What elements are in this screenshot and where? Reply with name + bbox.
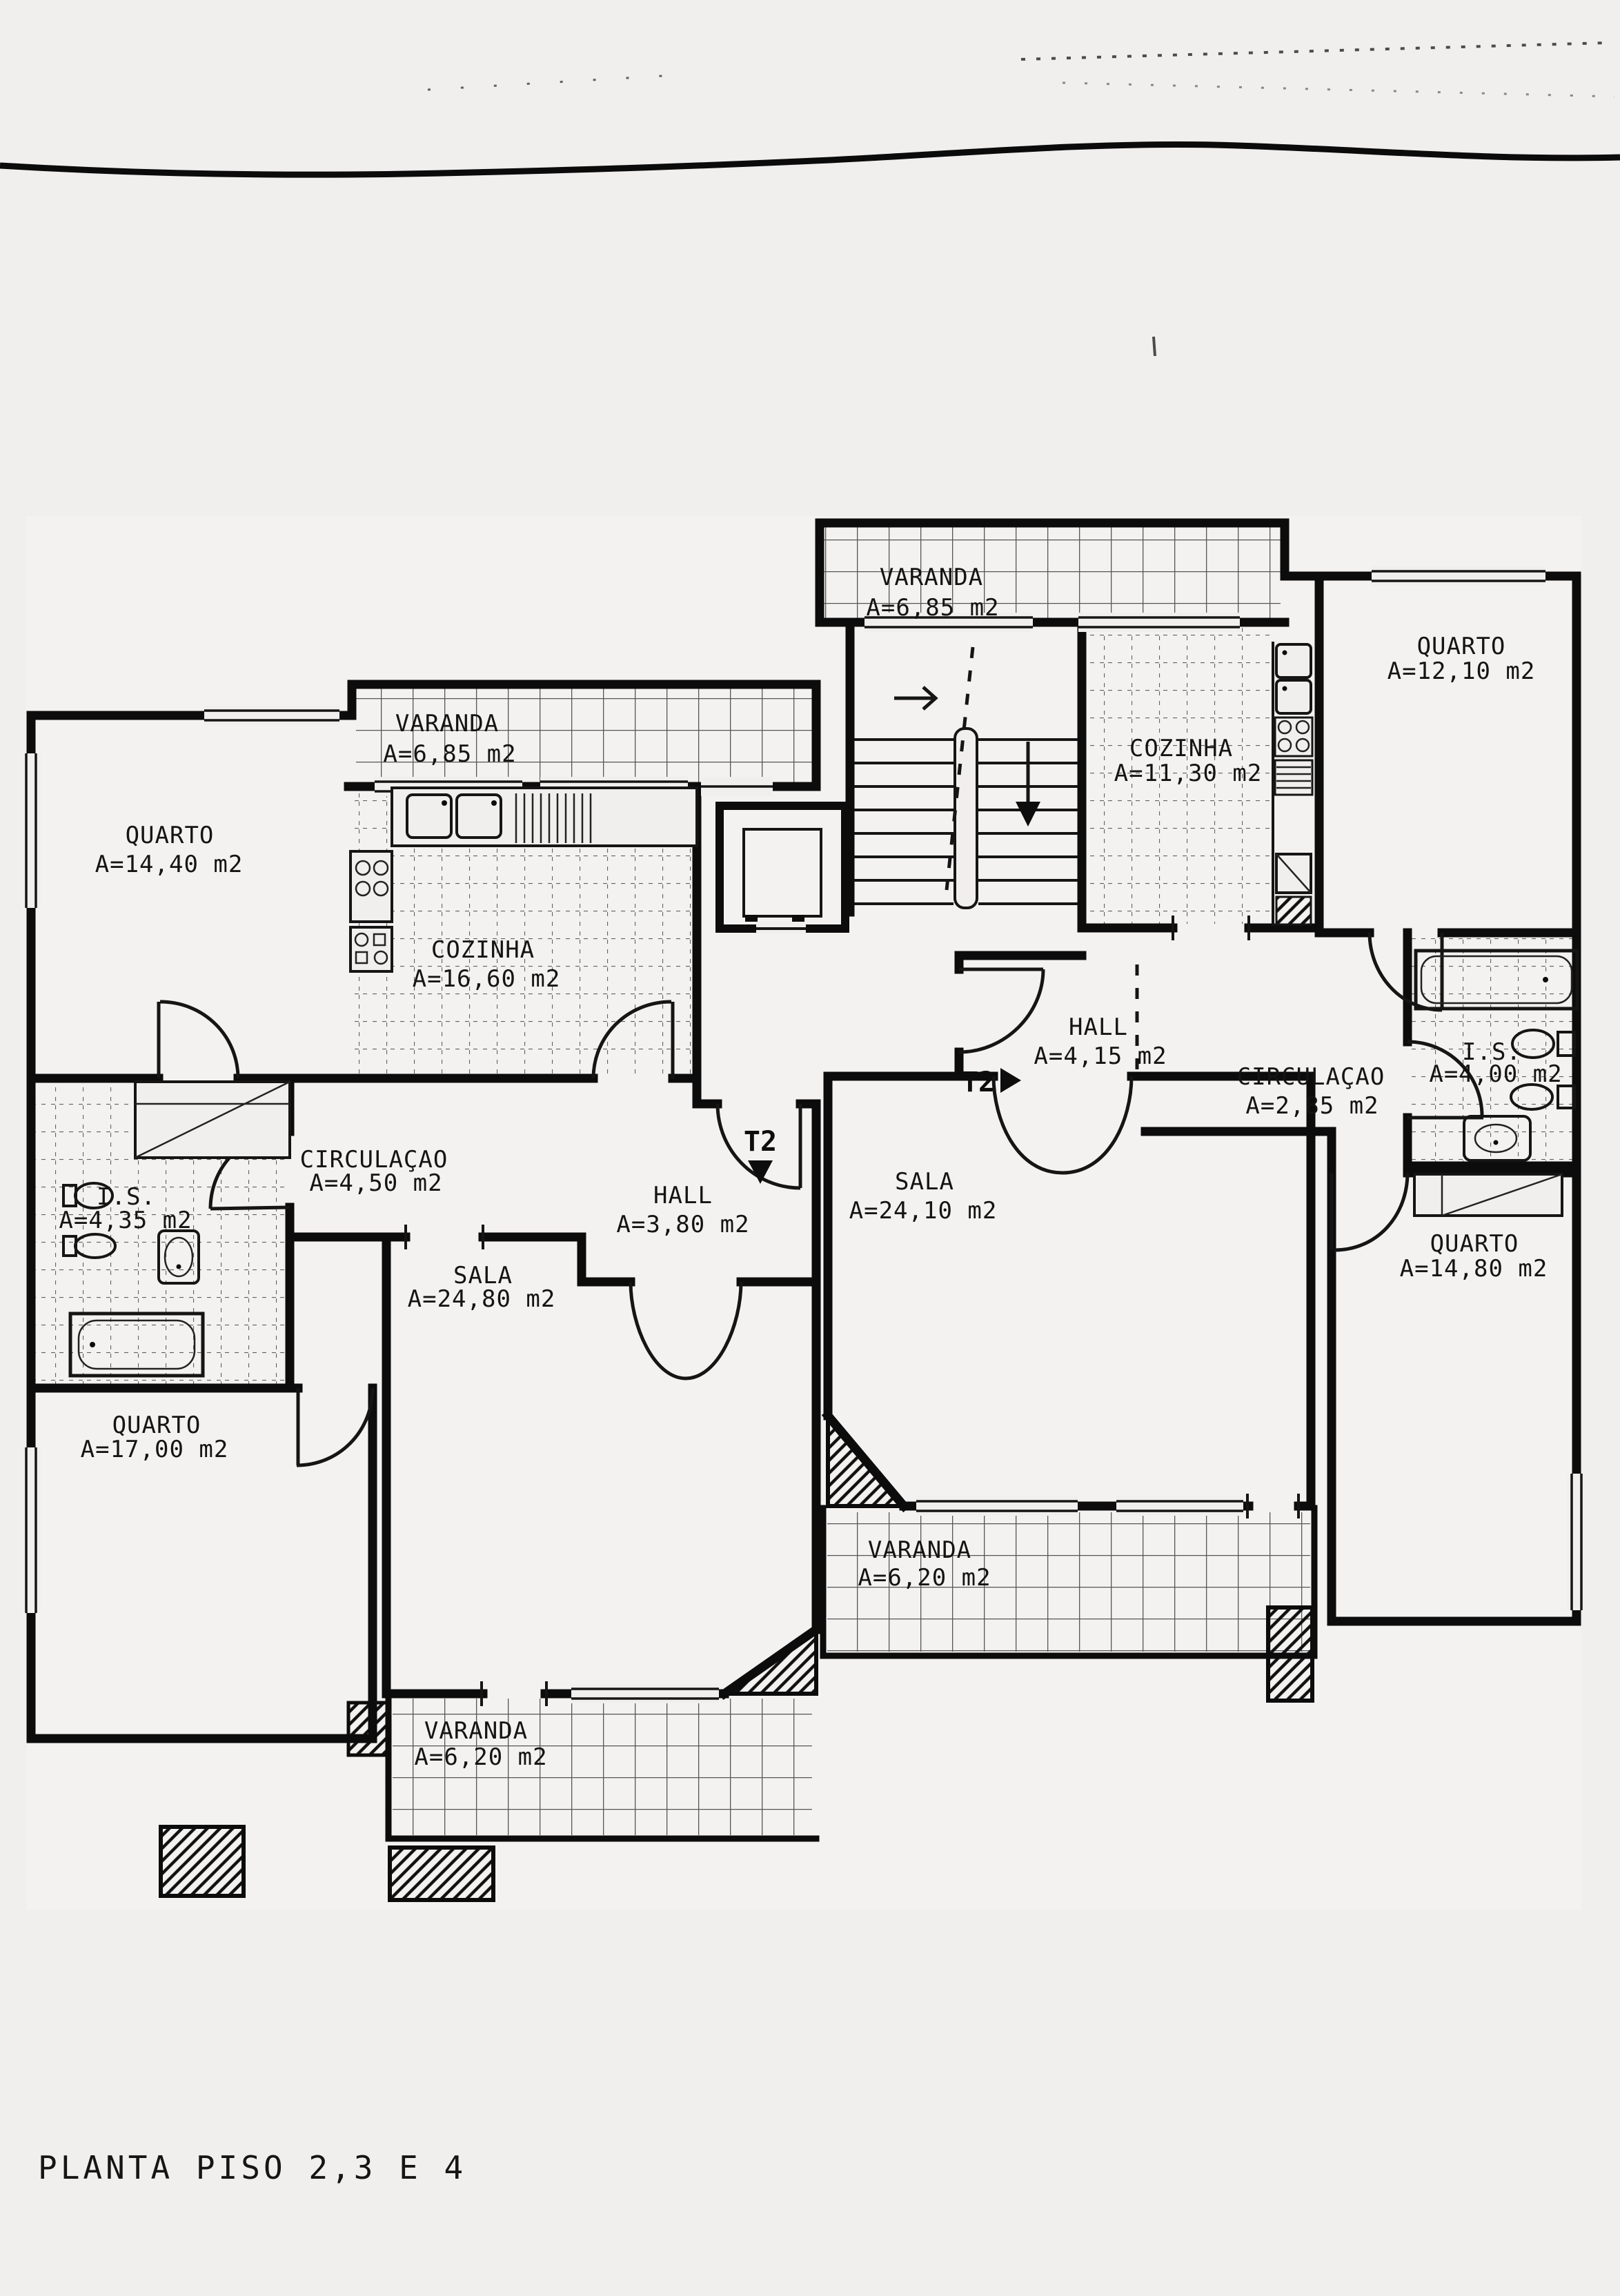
room-label: HALL: [1069, 1013, 1128, 1041]
room-label: QUARTO: [126, 822, 215, 849]
room-label: VARANDA: [395, 710, 499, 738]
window-icon: [21, 753, 41, 908]
floorplan-drawing: QUARTO A=14,40 m2 VARANDA A=6,85 m2 COZI…: [0, 0, 1620, 2296]
room-area: A=6,20 m2: [414, 1743, 547, 1771]
window-icon: [204, 706, 339, 725]
sink-icon: [1276, 644, 1311, 677]
room-label: QUARTO: [1430, 1230, 1519, 1258]
unit-marker-left: T2: [744, 1126, 777, 1158]
planter-icon: [390, 1848, 493, 1900]
room-label: VARANDA: [880, 564, 983, 591]
room-area: A=4,00 m2: [1429, 1060, 1562, 1088]
window-icon: [1116, 1496, 1243, 1516]
scan-artifacts: [0, 43, 1620, 356]
planter-icon: [161, 1827, 244, 1896]
stair-divider: [955, 729, 977, 908]
room-area: A=6,85 m2: [866, 594, 999, 622]
room-label: COZINHA: [1129, 735, 1233, 762]
room-area: A=3,80 m2: [616, 1211, 749, 1238]
drainer-icon: [1275, 760, 1312, 795]
room-area: A=12,10 m2: [1387, 657, 1536, 685]
room-area: A=17,00 m2: [81, 1436, 229, 1463]
room-label: SALA: [895, 1168, 954, 1196]
window-icon: [1372, 566, 1545, 586]
scanned-floorplan-sheet: QUARTO A=14,40 m2 VARANDA A=6,85 m2 COZI…: [0, 0, 1620, 2296]
kitchen-fixtures-right: [1273, 642, 1312, 926]
room-area: A=11,30 m2: [1114, 760, 1263, 787]
room-label: VARANDA: [424, 1717, 528, 1745]
room-area: A=6,85 m2: [383, 740, 516, 768]
room-area: A=14,80 m2: [1400, 1255, 1548, 1283]
room-area: A=24,80 m2: [408, 1285, 556, 1313]
room-label: QUARTO: [112, 1412, 201, 1439]
room-area: A=4,15 m2: [1034, 1042, 1167, 1070]
wardrobe-right: [1414, 1174, 1562, 1216]
room-label: QUARTO: [1417, 633, 1506, 660]
window-icon: [21, 1447, 41, 1613]
room-area: A=2,85 m2: [1245, 1092, 1379, 1120]
room-area: A=16,60 m2: [413, 965, 561, 993]
balcony-door-icon: [701, 777, 773, 796]
window-icon: [1567, 1474, 1586, 1610]
room-area: A=24,10 m2: [849, 1197, 998, 1225]
room-area: A=4,35 m2: [59, 1207, 192, 1234]
window-icon: [1078, 613, 1240, 632]
room-area: A=4,50 m2: [309, 1169, 442, 1197]
wardrobe-icon: [1414, 1174, 1562, 1216]
room-label: COZINHA: [431, 936, 535, 964]
room-label: CIRCULAÇAO: [1237, 1063, 1385, 1091]
plan-title: PLANTA PISO 2,3 E 4: [38, 2149, 466, 2186]
room-label: VARANDA: [868, 1536, 971, 1564]
counter-icon: [1276, 897, 1311, 924]
planter-icon: [348, 1703, 387, 1755]
sink-icon: [1276, 680, 1311, 713]
unit-marker-right: T2: [962, 1067, 995, 1098]
room-area: A=6,20 m2: [858, 1564, 991, 1592]
window-icon: [916, 1496, 1078, 1516]
room-area: A=14,40 m2: [95, 851, 244, 878]
room-label: HALL: [653, 1182, 713, 1209]
window-icon: [571, 1684, 719, 1703]
